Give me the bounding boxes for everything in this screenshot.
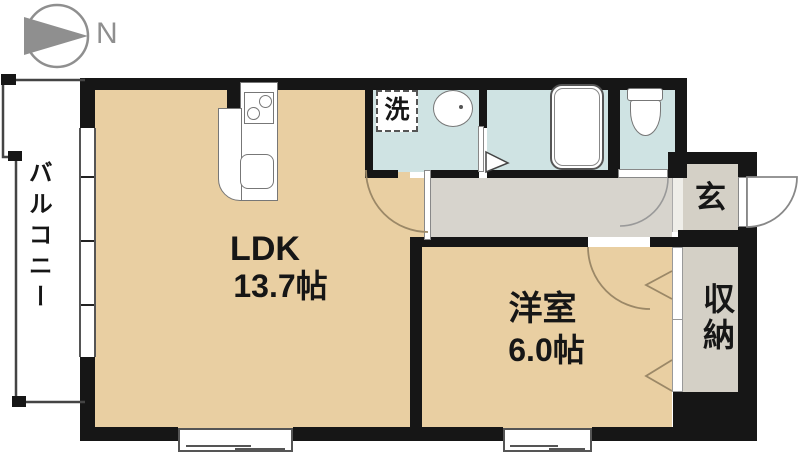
wall-washroom-left	[365, 78, 373, 178]
ldk-hall-door-leaf	[424, 170, 431, 240]
compass-label: N	[96, 18, 118, 50]
wall-wash-bottom-b	[431, 170, 479, 178]
wall-entrance-top	[668, 152, 757, 164]
window-rail	[549, 448, 585, 450]
entrance-label: 玄	[683, 182, 738, 215]
bedroom-window	[503, 428, 592, 452]
balcony-post-3	[12, 396, 26, 407]
wall-bedroom-top-b	[650, 237, 680, 247]
wall-bath-toilet	[608, 78, 620, 178]
bedroom-size: 6.0帖	[459, 334, 634, 368]
ldk-floor-nook	[365, 178, 431, 237]
window-rail	[186, 445, 251, 447]
window-tick	[81, 176, 94, 178]
wall-bath-bottom	[487, 170, 608, 178]
bedroom-door-opening	[588, 237, 650, 247]
wall-entrance-top-b	[668, 164, 687, 178]
ldk-window	[178, 428, 293, 452]
window-tick	[81, 304, 94, 306]
entry-step	[672, 175, 683, 232]
entrance-door-arc	[747, 177, 797, 227]
floor-plan: N バルコニー LDK 13.7帖 洋室 6.0帖 洗 玄 収納	[0, 0, 800, 454]
kitchen-sink	[240, 154, 274, 189]
closet-door-track	[672, 247, 683, 392]
balcony-post-1	[1, 74, 16, 85]
wall-wash-bottom-a	[365, 170, 398, 178]
ldk-size: 13.7帖	[193, 270, 368, 304]
basin-drain	[459, 105, 463, 109]
stove-burner-1	[247, 107, 260, 120]
storage-label: 収納	[688, 282, 733, 354]
wash-bath-door-leaf	[478, 126, 484, 172]
balcony-window	[79, 128, 96, 357]
bathtub	[550, 84, 604, 170]
wall-bedroom-top-a	[410, 237, 588, 247]
wall-ldk-bedroom	[410, 237, 422, 441]
toilet-door-leaf	[618, 169, 668, 178]
laundry-label: 洗	[376, 97, 418, 123]
closet-door-divider	[673, 319, 682, 320]
wall-right-lower	[738, 227, 757, 441]
stove-burner-2	[259, 95, 272, 108]
wall-bottom-1	[80, 427, 178, 441]
entrance-door-leaf	[738, 177, 747, 227]
bathtub-inner	[554, 88, 600, 166]
balcony-post-2	[8, 151, 22, 161]
window-rail	[235, 448, 285, 450]
wall-wash-bath	[479, 88, 487, 128]
balcony-label: バルコニー	[25, 160, 50, 315]
compass-needle	[24, 17, 88, 55]
wash-basin	[433, 90, 473, 127]
compass	[24, 5, 88, 67]
wall-bottom-2	[293, 427, 503, 441]
window-tick	[81, 240, 94, 242]
hallway-floor	[431, 178, 672, 237]
wall-entrance-bottom	[678, 230, 757, 247]
bedroom-name: 洋室	[480, 292, 605, 328]
window-rail	[510, 445, 558, 447]
compass-circle	[26, 5, 88, 67]
ldk-name: LDK	[200, 232, 330, 268]
kitchen-counter-ext	[218, 108, 242, 201]
